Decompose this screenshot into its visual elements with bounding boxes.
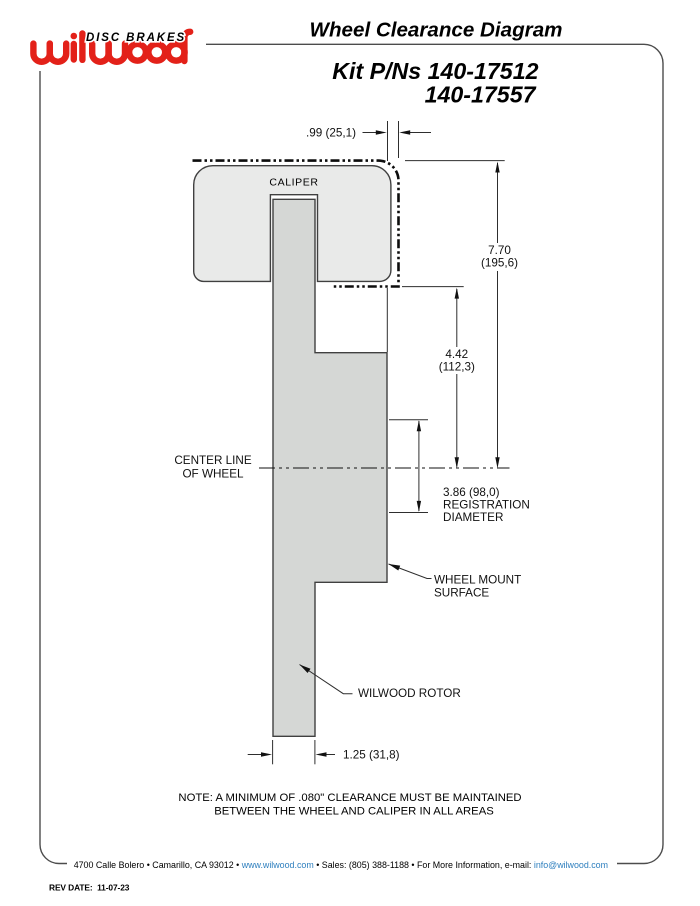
svg-text:OF WHEEL: OF WHEEL bbox=[182, 468, 244, 481]
svg-text:DIAMETER: DIAMETER bbox=[443, 511, 503, 524]
svg-text:1.25 (31,8): 1.25 (31,8) bbox=[343, 749, 400, 762]
svg-text:(195,6): (195,6) bbox=[481, 257, 518, 270]
svg-text:7.70: 7.70 bbox=[488, 244, 511, 257]
svg-text:WILWOOD ROTOR: WILWOOD ROTOR bbox=[358, 687, 461, 700]
svg-text:(112,3): (112,3) bbox=[439, 361, 475, 374]
svg-text:Kit P/Ns 140-17512: Kit P/Ns 140-17512 bbox=[332, 58, 538, 84]
svg-text:CENTER LINE: CENTER LINE bbox=[174, 454, 251, 467]
svg-text:SURFACE: SURFACE bbox=[434, 587, 489, 600]
svg-text:DISC BRAKES: DISC BRAKES bbox=[86, 32, 186, 44]
svg-text:BETWEEN THE WHEEL AND CALIPER: BETWEEN THE WHEEL AND CALIPER IN ALL ARE… bbox=[214, 806, 494, 818]
svg-text:WHEEL MOUNT: WHEEL MOUNT bbox=[434, 574, 521, 587]
svg-text:4.42: 4.42 bbox=[445, 348, 468, 361]
svg-text:Wheel Clearance Diagram: Wheel Clearance Diagram bbox=[310, 19, 563, 42]
svg-text:NOTE: A MINIMUM OF .080" CLEAR: NOTE: A MINIMUM OF .080" CLEARANCE MUST … bbox=[178, 792, 521, 804]
svg-text:140-17557: 140-17557 bbox=[425, 82, 537, 108]
svg-text:CALIPER: CALIPER bbox=[269, 177, 318, 189]
svg-text:4700 Calle Bolero • Camarillo,: 4700 Calle Bolero • Camarillo, CA 93012 … bbox=[74, 860, 608, 870]
svg-text:3.86 (98,0): 3.86 (98,0) bbox=[443, 486, 500, 499]
svg-text:REGISTRATION: REGISTRATION bbox=[443, 499, 530, 512]
svg-text:REV DATE: 11-07-23: REV DATE: 11-07-23 bbox=[49, 882, 130, 892]
svg-text:.99 (25,1): .99 (25,1) bbox=[306, 127, 356, 140]
